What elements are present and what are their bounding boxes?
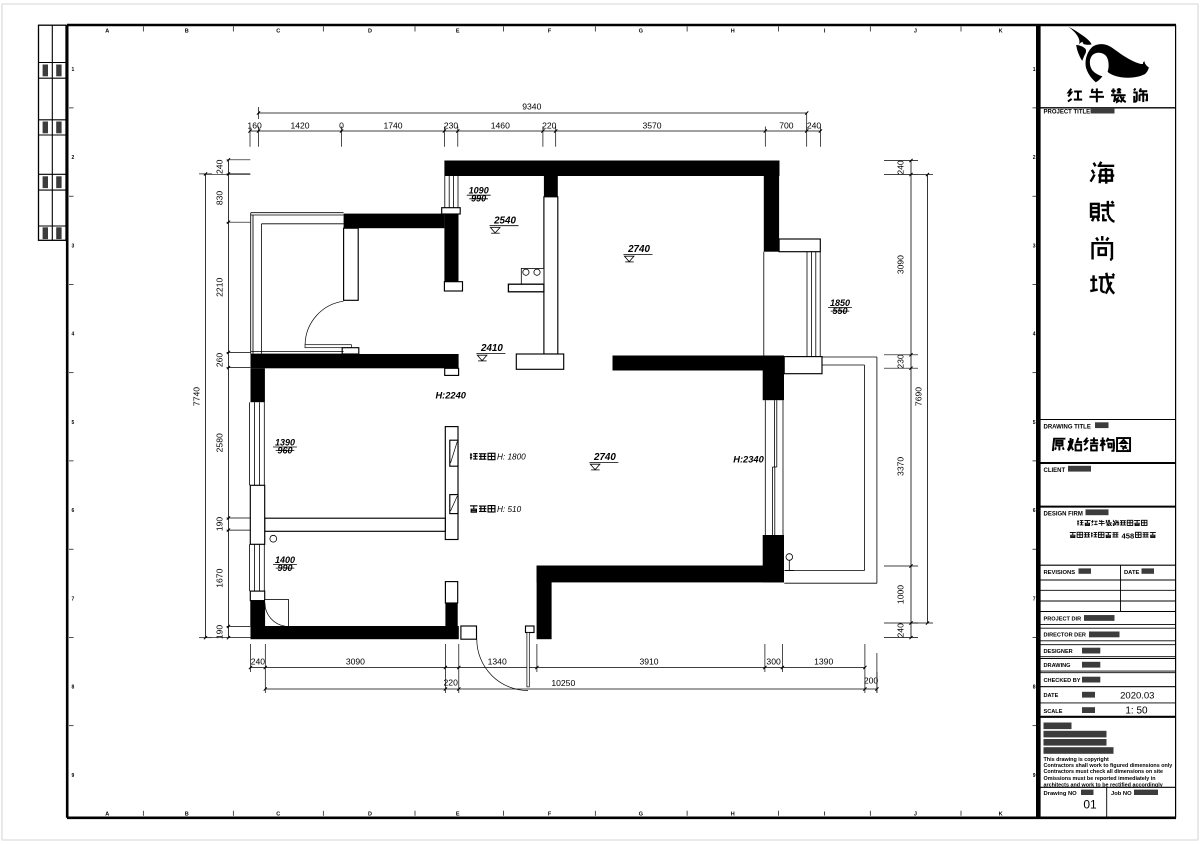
svg-text:1460: 1460 <box>491 121 510 131</box>
svg-text:220: 220 <box>542 121 557 131</box>
svg-text:CLIENT: CLIENT <box>1044 468 1066 474</box>
svg-text:E: E <box>456 812 460 818</box>
svg-text:220: 220 <box>444 678 459 688</box>
svg-text:H: H <box>731 812 735 818</box>
svg-text:F: F <box>548 29 552 35</box>
svg-text:2: 2 <box>72 155 75 161</box>
svg-text:3090: 3090 <box>346 656 365 666</box>
svg-text:5: 5 <box>72 420 75 426</box>
svg-text:1670: 1670 <box>215 568 225 587</box>
svg-text:10250: 10250 <box>551 678 575 688</box>
svg-text:240: 240 <box>896 160 906 175</box>
svg-text:DATE: DATE <box>1044 693 1059 699</box>
svg-text:H:2240: H:2240 <box>435 390 466 400</box>
svg-text:4: 4 <box>72 332 75 338</box>
svg-text:300: 300 <box>766 656 781 666</box>
svg-text:700: 700 <box>779 121 794 131</box>
svg-text:240: 240 <box>215 159 225 174</box>
svg-text:3370: 3370 <box>896 457 906 476</box>
svg-text:DESIGNER: DESIGNER <box>1044 649 1073 655</box>
svg-text:240: 240 <box>807 121 822 131</box>
svg-text:3090: 3090 <box>896 255 906 274</box>
svg-text:2540: 2540 <box>493 215 516 226</box>
svg-text:Omissions must be reported imm: Omissions must be reported immediately i… <box>1044 776 1156 782</box>
svg-text:5: 5 <box>1033 420 1036 426</box>
svg-text:H: H <box>731 29 735 35</box>
svg-text:6: 6 <box>1033 508 1036 514</box>
svg-text:2: 2 <box>1033 155 1036 161</box>
svg-text:H: 1800: H: 1800 <box>497 453 526 462</box>
svg-text:7: 7 <box>1033 596 1036 602</box>
svg-text:4: 4 <box>1033 332 1036 338</box>
svg-text:1: 50: 1: 50 <box>1125 706 1148 717</box>
svg-text:1: 1 <box>72 67 75 73</box>
svg-text:J: J <box>914 812 917 818</box>
svg-text:2740: 2740 <box>627 244 650 255</box>
svg-text:240: 240 <box>251 656 266 666</box>
svg-text:SCALE: SCALE <box>1044 709 1063 715</box>
svg-text:A: A <box>105 29 109 35</box>
svg-text:1340: 1340 <box>488 656 507 666</box>
svg-text:2580: 2580 <box>215 433 225 452</box>
svg-text:DRAWING: DRAWING <box>1044 663 1071 669</box>
svg-text:9340: 9340 <box>522 102 541 112</box>
svg-text:I: I <box>824 29 826 35</box>
svg-text:3570: 3570 <box>642 121 661 131</box>
svg-text:D: D <box>368 29 372 35</box>
svg-text:160: 160 <box>247 121 262 131</box>
svg-text:CHECKED BY: CHECKED BY <box>1044 678 1081 684</box>
svg-text:8: 8 <box>72 685 75 691</box>
svg-text:2210: 2210 <box>215 278 225 297</box>
svg-text:REVISIONS: REVISIONS <box>1044 570 1076 576</box>
svg-text:DRAWING TITLE: DRAWING TITLE <box>1044 424 1091 430</box>
svg-text:190: 190 <box>215 625 225 640</box>
svg-text:1000: 1000 <box>896 585 906 604</box>
svg-text:9: 9 <box>72 773 75 779</box>
svg-text:190: 190 <box>215 517 225 532</box>
svg-text:830: 830 <box>215 191 225 206</box>
svg-text:3: 3 <box>72 243 75 249</box>
svg-text:230: 230 <box>896 354 906 369</box>
svg-text:2020.03: 2020.03 <box>1120 691 1154 702</box>
svg-text:9: 9 <box>1033 773 1036 779</box>
svg-text:1740: 1740 <box>383 121 402 131</box>
svg-text:7740: 7740 <box>192 387 202 406</box>
svg-text:D: D <box>368 812 372 818</box>
svg-text:C: C <box>276 29 280 35</box>
svg-text:3: 3 <box>1033 243 1036 249</box>
svg-text:Contractors must check all dim: Contractors must check all dimensions on… <box>1044 769 1164 775</box>
svg-text:PROJECT DIR: PROJECT DIR <box>1044 616 1082 622</box>
svg-text:8: 8 <box>1033 685 1036 691</box>
svg-text:E: E <box>456 29 460 35</box>
svg-text:J: J <box>914 29 917 35</box>
svg-text:Drawing NO: Drawing NO <box>1044 791 1078 797</box>
svg-text:K: K <box>999 29 1003 35</box>
svg-text:DESIGN FIRM: DESIGN FIRM <box>1044 511 1083 517</box>
svg-text:DIRECTOR DER: DIRECTOR DER <box>1044 633 1086 639</box>
svg-text:01: 01 <box>1083 798 1097 812</box>
svg-text:458: 458 <box>1122 531 1135 540</box>
svg-text:C: C <box>276 812 280 818</box>
svg-text:A: A <box>105 812 109 818</box>
svg-text:7690: 7690 <box>914 387 924 406</box>
svg-text:H:2340: H:2340 <box>733 455 764 465</box>
svg-text:1390: 1390 <box>814 656 833 666</box>
svg-text:7: 7 <box>72 596 75 602</box>
svg-text:6: 6 <box>72 508 75 514</box>
svg-text:B: B <box>185 29 189 35</box>
svg-text:240: 240 <box>896 623 906 638</box>
svg-text:2410: 2410 <box>480 343 503 354</box>
svg-text:2740: 2740 <box>593 452 616 463</box>
svg-text:PROJECT TITLE: PROJECT TITLE <box>1044 109 1091 115</box>
svg-text:260: 260 <box>215 353 225 368</box>
svg-text:G: G <box>639 29 643 35</box>
svg-text:H: 510: H: 510 <box>497 505 522 514</box>
svg-text:230: 230 <box>444 121 459 131</box>
svg-text:B: B <box>185 812 189 818</box>
svg-text:1: 1 <box>1033 67 1036 73</box>
svg-text:K: K <box>999 812 1003 818</box>
svg-text:0: 0 <box>339 121 344 131</box>
svg-text:Job NO: Job NO <box>1111 791 1132 797</box>
svg-text:G: G <box>639 812 643 818</box>
svg-text:3910: 3910 <box>639 656 658 666</box>
svg-text:200: 200 <box>864 676 879 686</box>
svg-text:DATE: DATE <box>1124 570 1139 576</box>
svg-text:1420: 1420 <box>290 121 309 131</box>
